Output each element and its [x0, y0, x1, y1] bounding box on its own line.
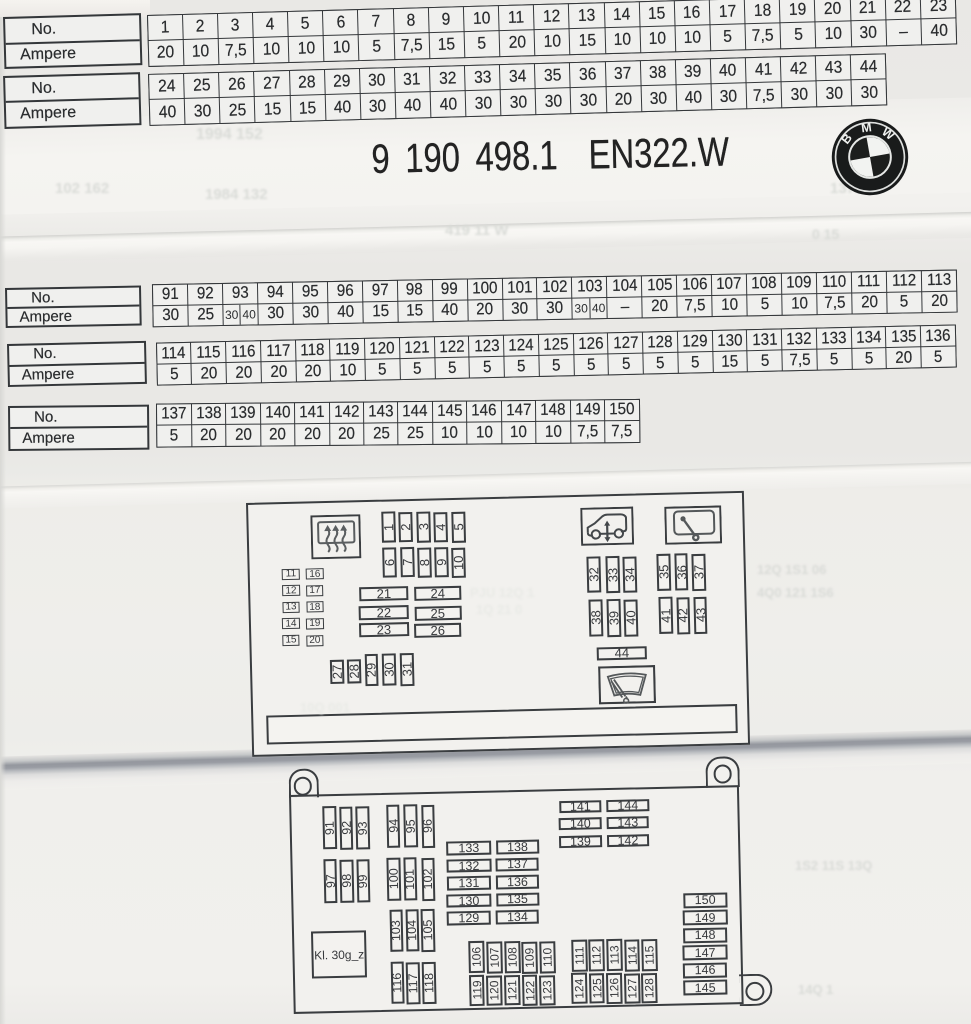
svg-text:M: M	[860, 120, 872, 135]
